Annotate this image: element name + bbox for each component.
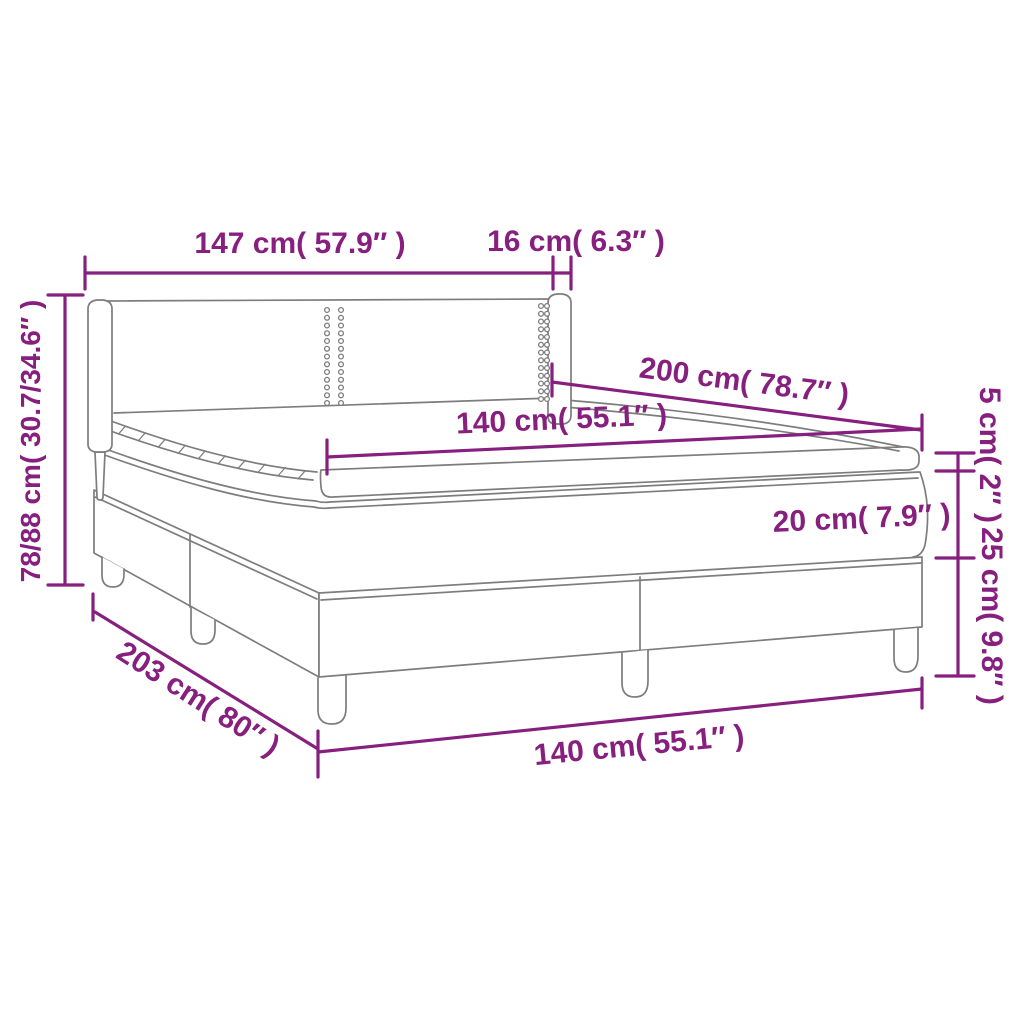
- stud-dot: [339, 339, 344, 344]
- stud-dot: [539, 358, 544, 363]
- stud-dot: [539, 327, 544, 332]
- stud-dot: [325, 315, 330, 320]
- piping-hatch-mark: [178, 445, 185, 453]
- stud-dot: [339, 393, 344, 398]
- stud-dot: [545, 397, 550, 402]
- label-headboard-wing-depth: 16 cm( 6.3″ ): [487, 225, 665, 258]
- label-pillow-top-height: 5 cm( 2″ ): [973, 387, 1006, 523]
- stud-dot: [545, 335, 550, 340]
- stud-dot: [325, 354, 330, 359]
- stud-dot: [539, 342, 544, 347]
- stud-dot: [339, 331, 344, 336]
- stud-dot: [539, 304, 544, 309]
- leg: [894, 628, 918, 672]
- stud-dot: [325, 385, 330, 390]
- stud-dot: [545, 342, 550, 347]
- piping-hatch-mark: [258, 464, 265, 472]
- label-mattress-height: 20 cm( 7.9″ ): [772, 498, 951, 539]
- dimension-headboard-height: [48, 295, 83, 585]
- stud-dot: [539, 366, 544, 371]
- label-headboard-height: 78/88 cm( 30.7/34.6″ ): [15, 300, 46, 583]
- stud-dot: [339, 370, 344, 375]
- stud-dot: [545, 350, 550, 355]
- stud-dot: [539, 397, 544, 402]
- label-base-height: 25 cm( 9.8″ ): [975, 527, 1008, 705]
- stud-dot: [339, 315, 344, 320]
- stud-dot: [325, 346, 330, 351]
- stud-dot: [339, 362, 344, 367]
- stud-dot: [339, 354, 344, 359]
- label-headboard-width: 147 cm( 57.9″ ): [194, 227, 405, 260]
- label-mattress-length: 200 cm( 78.7″ ): [637, 351, 851, 411]
- stud-dot: [325, 362, 330, 367]
- stud-dot: [325, 323, 330, 328]
- piping-hatch-mark: [118, 426, 125, 434]
- stud-dot: [545, 381, 550, 386]
- stud-dot: [325, 377, 330, 382]
- headboard-left-wing: [88, 300, 112, 500]
- diagram-canvas: 147 cm( 57.9″ ) 16 cm( 6.3″ ) 78/88 cm( …: [0, 0, 1024, 1024]
- stud-dot: [539, 350, 544, 355]
- leg: [318, 676, 346, 724]
- piping-hatch-mark: [158, 439, 165, 447]
- label-base-length: 203 cm( 80″ ): [111, 635, 286, 763]
- piping-hatch-mark: [298, 471, 305, 479]
- stud-dot: [325, 331, 330, 336]
- leg: [622, 650, 648, 697]
- stud-dot: [339, 308, 344, 313]
- stud-dot: [325, 308, 330, 313]
- stud-dot: [325, 370, 330, 375]
- stud-dot: [545, 319, 550, 324]
- piping-hatch-mark: [238, 460, 245, 468]
- stud-dot: [339, 385, 344, 390]
- stud-dot: [539, 381, 544, 386]
- stud-dot: [339, 377, 344, 382]
- stud-dot: [325, 401, 330, 406]
- stud-dot: [545, 311, 550, 316]
- piping-hatch-mark: [218, 456, 225, 464]
- piping-hatch-mark: [138, 433, 145, 441]
- stud-dot: [339, 346, 344, 351]
- stud-dot: [539, 335, 544, 340]
- piping-hatch-mark: [198, 451, 205, 459]
- stud-dot: [545, 373, 550, 378]
- dimension-right-heights: [936, 453, 974, 676]
- stud-dot: [545, 358, 550, 363]
- stud-dot: [339, 401, 344, 406]
- stud-dot: [545, 304, 550, 309]
- stud-dot: [539, 373, 544, 378]
- stud-dot: [545, 389, 550, 394]
- stud-dot: [539, 389, 544, 394]
- stud-dot: [325, 339, 330, 344]
- piping-hatch-mark: [278, 468, 285, 476]
- dimension-headboard-width: [85, 257, 571, 289]
- stud-dot: [539, 319, 544, 324]
- bed-dimension-diagram: 147 cm( 57.9″ ) 16 cm( 6.3″ ) 78/88 cm( …: [0, 0, 1024, 1024]
- stud-dot: [545, 327, 550, 332]
- stud-dot: [539, 311, 544, 316]
- stud-dot: [545, 366, 550, 371]
- stud-dot: [339, 323, 344, 328]
- stud-dot: [325, 393, 330, 398]
